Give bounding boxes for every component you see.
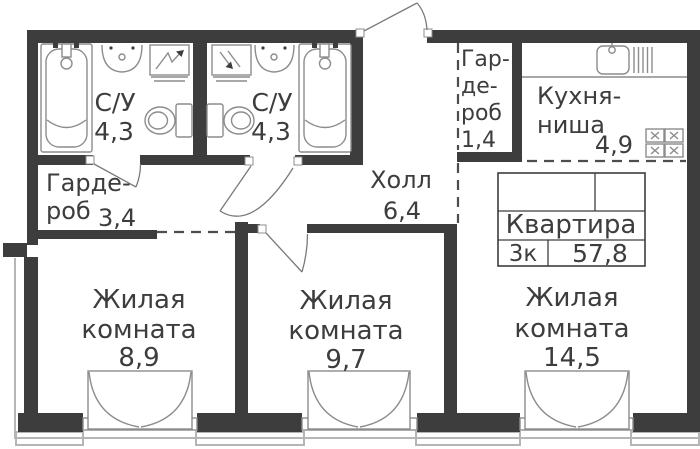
door-hinge [356, 29, 364, 37]
wall-segment [27, 43, 38, 245]
washing-machine-icon [150, 45, 189, 75]
wall-segment [24, 257, 38, 415]
wall-segment [512, 43, 522, 152]
toilet-icon [145, 107, 175, 134]
wall-room-divider [444, 224, 457, 417]
sink-icon [255, 45, 294, 72]
wardrobe-small-area: 1,4 [461, 128, 496, 153]
bathtub-tap [62, 44, 71, 57]
tap-mark [74, 43, 79, 48]
entrance-door-swing [417, 3, 427, 30]
bathroom1-door-swing [136, 164, 141, 187]
sink-tap-dot [261, 46, 264, 49]
bathroom2-label: С/У [251, 88, 292, 117]
wall-segment [687, 43, 700, 420]
door-hinge [424, 29, 432, 37]
wall-segment [3, 243, 27, 257]
wardrobe-small-label: роб [461, 101, 502, 126]
bathroom2-door-leaf [220, 166, 251, 211]
bathroom1-label: С/У [94, 88, 135, 117]
tap-mark [333, 43, 338, 48]
living1-label: комната [81, 315, 196, 345]
living3-label: Жилая [525, 283, 618, 313]
bathroom2-door-swing [220, 168, 293, 216]
french-door [308, 371, 410, 429]
kitchen-sink-icon [597, 46, 629, 74]
sink-tap-dot [131, 46, 134, 49]
living1-label: Жилая [92, 285, 185, 315]
wall-segment [38, 155, 93, 165]
french-door [525, 371, 629, 429]
tap-mark [312, 43, 317, 48]
wall-segment [295, 155, 350, 165]
floor-plan-drawing: Квартира 3к 57,8 С/У 4,3 С/У 4,3 Гар- де… [0, 0, 700, 449]
door-hinge [294, 157, 302, 165]
door-hinge [86, 156, 94, 164]
wall-pier [197, 413, 302, 432]
wardrobe-small-label: де- [461, 74, 498, 99]
living1-area: 8,9 [118, 343, 159, 373]
tap-mark [53, 43, 58, 48]
bathtub-icon [41, 44, 92, 152]
floor-plan: Квартира 3к 57,8 С/У 4,3 С/У 4,3 Гар- де… [0, 0, 700, 449]
toilet-cistern [176, 104, 192, 137]
bathroom1-area: 4,3 [94, 117, 134, 146]
wardrobe-area: 3,4 [98, 204, 136, 232]
wall-segment [140, 155, 250, 165]
toilet-cistern [207, 104, 223, 137]
apartment-rooms-count: 3к [509, 241, 538, 267]
entrance-door-leaf [364, 3, 417, 31]
washing-machine-icon [212, 45, 251, 75]
apartment-total-area: 57,8 [572, 239, 628, 268]
wall-segment [307, 224, 457, 233]
hall-label: Холл [370, 166, 432, 194]
sink-tap-dot [283, 46, 286, 49]
living3-label: комната [514, 314, 629, 344]
wall-pier [417, 413, 520, 432]
apartment-info-table: Квартира 3к 57,8 [498, 173, 645, 268]
living2-door-leaf [266, 233, 302, 272]
toilet-icon [224, 107, 254, 134]
wall-segment [427, 30, 700, 43]
living3-area: 14,5 [543, 343, 601, 373]
sink-tap-dot [109, 46, 112, 49]
drainer-lines [634, 47, 652, 73]
bathtub-icon [299, 44, 351, 152]
wall-pier [18, 413, 83, 432]
wall-segment [27, 30, 363, 43]
windows [83, 371, 633, 430]
wall-bathroom-divider [193, 43, 207, 165]
hall-area: 6,4 [383, 197, 421, 225]
wall-room-divider [235, 222, 248, 417]
living2-area: 9,7 [325, 345, 366, 375]
wall-segment [457, 152, 522, 162]
kitchen-label: Кухня- [537, 82, 621, 110]
wardrobe-label: роб [46, 197, 91, 225]
bathtub-tap [320, 44, 329, 57]
wardrobe-label: Гарде- [46, 169, 131, 197]
door-hinge [245, 157, 253, 165]
bathroom2-area: 4,3 [251, 117, 291, 146]
wall-segment [350, 43, 363, 165]
living2-label: Жилая [299, 286, 392, 316]
apartment-title: Квартира [506, 210, 637, 240]
wall-pier [633, 413, 700, 432]
living2-label: комната [288, 316, 403, 346]
door-hinge [258, 225, 266, 233]
kitchen-area: 4,9 [595, 131, 633, 159]
sink-icon [102, 45, 142, 72]
wardrobe-small-label: Гар- [461, 47, 510, 72]
living2-door-swing [302, 234, 308, 272]
stove-icon [646, 129, 683, 157]
french-door [88, 371, 192, 429]
